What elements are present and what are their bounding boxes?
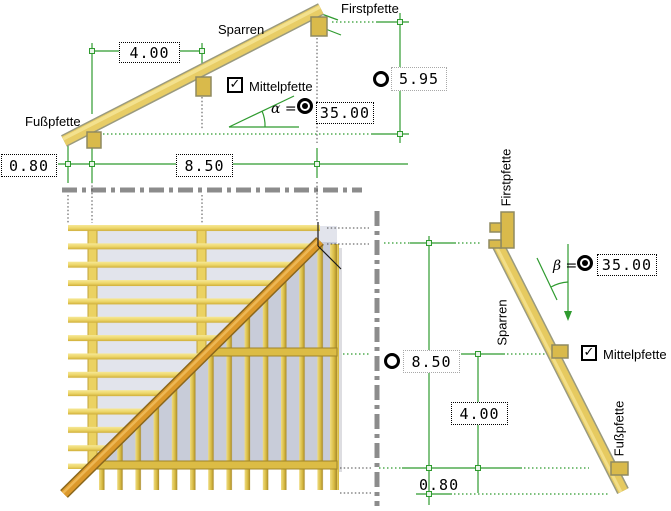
plan-view [63,222,342,494]
side-span-radio[interactable] [384,353,400,369]
side-firstpfette-label: Firstpfette [499,133,514,223]
front-purlin-distance-input[interactable]: 4.00 [119,42,180,63]
arrow-down-icon [564,311,572,321]
front-sparren-label: Sparren [218,22,264,37]
side-view-purlins [489,212,628,475]
front-fusspfette-label: Fußpfette [25,114,81,129]
side-span-output: 8.50 [403,350,460,373]
side-mittelpfette-checkbox[interactable]: ✓ [581,345,597,361]
front-ridge-height-radio[interactable] [373,71,389,87]
radio-dot-icon [302,103,308,109]
side-sparren-label: Sparren [495,278,510,368]
front-mittelpfette-checkbox[interactable]: ✓ [227,77,243,93]
front-span-input[interactable]: 8.50 [176,154,233,177]
check-icon: ✓ [584,346,595,359]
side-mittelpfette-checkbox-label: Mittelpfette [603,347,667,362]
alpha-symbol-label: α = [271,101,297,117]
front-overhang-input[interactable]: 0.80 [1,154,57,177]
front-angle-input[interactable]: 35.00 [316,102,374,124]
front-firstpfette-label: Firstpfette [341,1,399,16]
side-view-rafter [495,243,623,492]
front-view-dimensions [58,13,409,183]
front-angle-radio[interactable] [297,98,313,114]
side-fusspfette-label: Fußpfette [612,384,627,474]
dimension-markers [66,20,403,167]
radio-dot-icon [582,260,588,266]
front-mittelpfette-checkbox-label: Mittelpfette [249,79,313,94]
plan-fusspfette-beam [86,461,337,469]
roof-parameter-screen: Firstpfette Sparren Fußpfette ✓ Mittelpf… [0,0,671,511]
front-mittelpfette-block [196,77,211,96]
front-firstpfette-block [311,17,327,36]
beta-angle-widget [537,244,572,321]
side-mittelpfette-block [552,345,568,358]
check-icon: ✓ [230,78,241,91]
side-overhang-value: 0.80 [419,476,459,494]
side-angle-radio[interactable] [577,255,593,271]
front-view-rafter [63,7,321,141]
front-ridge-height-output: 5.95 [391,67,447,91]
side-angle-input[interactable]: 35.00 [597,254,657,276]
front-fusspfette-block [87,132,101,148]
beta-symbol-label: β = [553,258,577,274]
plan-mittelpfette-beam [200,348,337,356]
side-purlin-distance-input[interactable]: 4.00 [451,402,508,425]
roof-drawing-canvas [0,0,671,511]
